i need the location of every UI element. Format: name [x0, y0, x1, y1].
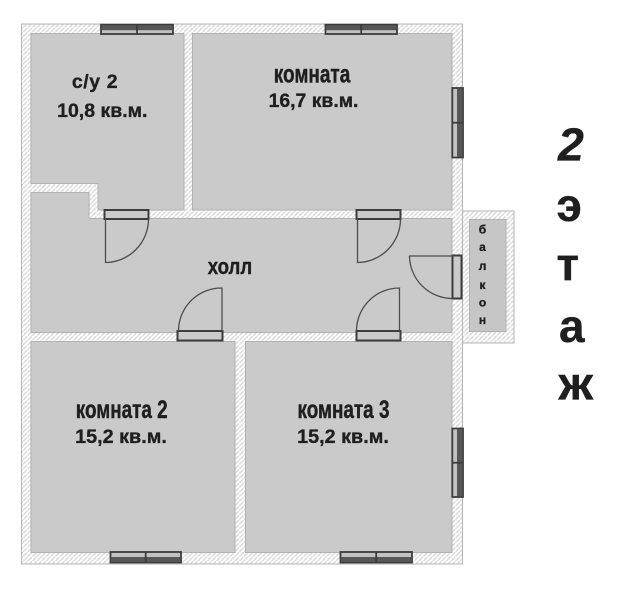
svg-text:комната 2: комната 2	[76, 395, 168, 423]
svg-text:комната 3: комната 3	[298, 395, 390, 423]
svg-text:16,7 кв.м.: 16,7 кв.м.	[269, 90, 359, 112]
svg-text:холл: холл	[208, 255, 252, 280]
svg-text:ж: ж	[558, 359, 594, 410]
svg-text:т: т	[557, 238, 580, 290]
svg-text:15,2 кв.м.: 15,2 кв.м.	[297, 426, 389, 448]
svg-text:15,2 кв.м.: 15,2 кв.м.	[75, 426, 167, 448]
svg-text:к: к	[479, 278, 486, 292]
svg-text:а: а	[559, 300, 585, 352]
svg-text:б: б	[479, 222, 486, 236]
svg-text:комната: комната	[274, 60, 351, 88]
svg-text:л: л	[479, 259, 487, 273]
svg-text:о: о	[479, 296, 486, 310]
svg-text:н: н	[479, 313, 486, 327]
svg-text:с/у 2: с/у 2	[72, 71, 118, 93]
svg-text:2: 2	[557, 118, 584, 170]
svg-text:а: а	[479, 240, 486, 254]
svg-text:э: э	[557, 179, 582, 231]
svg-text:10,8 кв.м.: 10,8 кв.м.	[57, 100, 147, 122]
